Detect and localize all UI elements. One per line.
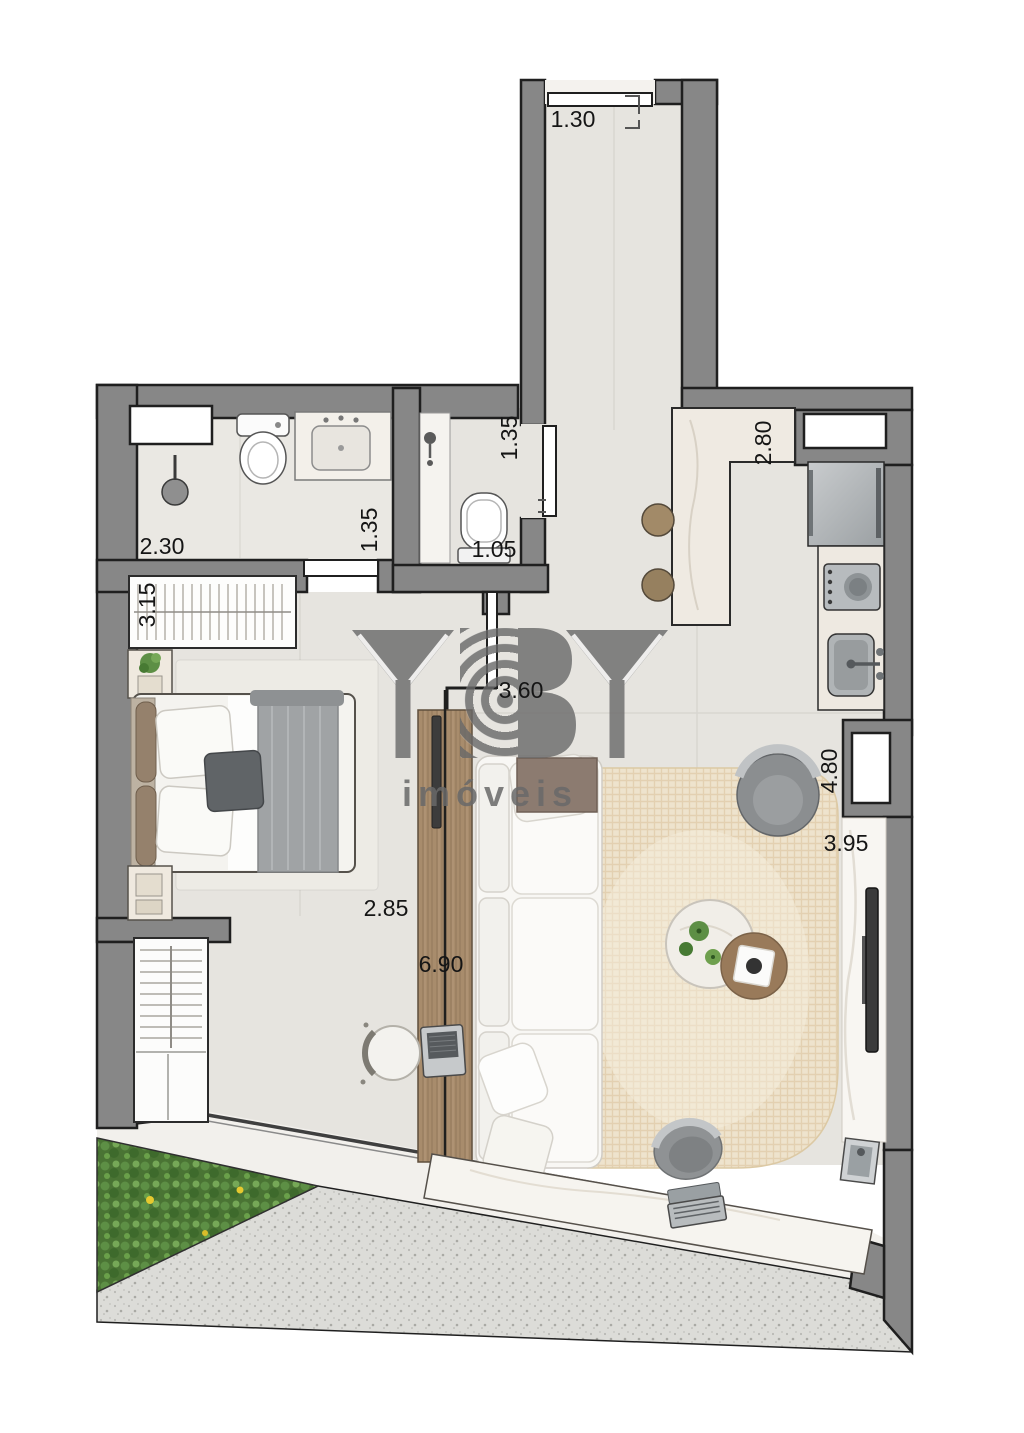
top-wall-right (682, 388, 912, 410)
floor-plan-graphic: YBY (0, 0, 1024, 1433)
dimension-label-bath1-d: 1.35 (356, 495, 382, 565)
right-wall-mid (884, 817, 912, 1150)
bolster-pillow (136, 702, 156, 782)
flower (146, 1196, 154, 1204)
cooktop-icon (824, 564, 880, 610)
shower-head-icon (162, 479, 188, 505)
bolster-pillow (136, 786, 156, 866)
watermark-tagline: imóveis (386, 773, 594, 815)
dimension-label-wardrobe: 3.15 (134, 570, 160, 640)
coffee-table-wood (721, 933, 787, 999)
plant-icon (679, 942, 693, 956)
stool-icon (642, 569, 674, 601)
accent-pillow (204, 750, 264, 812)
flower (237, 1187, 244, 1194)
dimension-label-living-l: 6.90 (406, 951, 476, 977)
fridge-handle (809, 470, 813, 536)
dimension-label-bath2-d: 1.35 (496, 403, 522, 473)
shower-head-icon (424, 432, 436, 444)
dimension-label-balcony: 3.95 (811, 830, 881, 856)
shelf-cabinet (134, 938, 208, 1122)
sofa (475, 753, 602, 1185)
bowl (746, 958, 762, 974)
kitchen-window (804, 414, 886, 448)
blanket (258, 694, 338, 872)
wall-frame-icon (840, 1138, 879, 1184)
bath-2-door-leaf (543, 426, 556, 516)
dimension-label-entry: 1.30 (538, 106, 608, 132)
armchair-icon (737, 749, 819, 836)
decor-box (136, 874, 162, 896)
refrigerator-icon (808, 462, 884, 546)
nightstand (128, 866, 172, 920)
bed (131, 690, 355, 872)
right-wall-upper (884, 465, 912, 735)
bath-2-west-wall (393, 388, 420, 592)
dimension-label-kitchen: 2.80 (750, 408, 776, 478)
tv-wall (842, 818, 886, 1142)
bath-2-south-wall (393, 565, 548, 592)
seat-cushion (512, 898, 598, 1030)
blanket-fold (250, 690, 344, 706)
dimension-label-hall: 3.60 (486, 677, 556, 703)
dimension-label-bath2-w: 1.05 (459, 536, 529, 562)
balcony-laptop-icon (665, 1182, 726, 1228)
floor-plan: YBY 1.30 2.30 1.35 1.35 1.05 2.80 3.15 3… (0, 0, 1024, 1433)
tv-icon (866, 888, 878, 1052)
decor-box (138, 676, 162, 694)
back-cushion (479, 898, 509, 1026)
corridor-right-wall (682, 80, 717, 430)
dimension-label-bath1-w: 2.30 (127, 533, 197, 559)
nightstand (128, 650, 172, 698)
toilet-icon (237, 414, 289, 484)
living-window (852, 733, 890, 803)
laptop-icon (420, 1025, 465, 1078)
entry-door-leaf (548, 93, 652, 106)
dimension-label-bedroom: 2.85 (351, 895, 421, 921)
stool-icon (642, 504, 674, 536)
bath-1-window (130, 406, 212, 444)
decor-box (136, 900, 162, 914)
flower (202, 1230, 208, 1236)
left-wall-lower (97, 942, 137, 1128)
dimension-label-living-d: 4.80 (816, 736, 842, 806)
right-wall-bottom (884, 1150, 912, 1352)
vanity-sink-icon (295, 412, 391, 480)
